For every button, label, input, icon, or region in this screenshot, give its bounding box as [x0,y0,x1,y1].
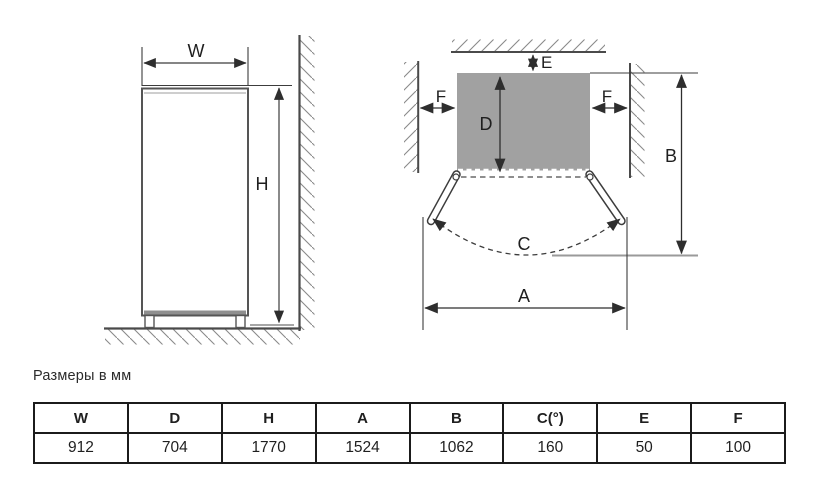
dim-label-b: B [665,146,677,166]
front-view-diagram: W H [104,35,315,345]
table-header-row: W D H A B C(°) E F [34,403,785,433]
fridge-foot-left [145,316,154,328]
table-value-cell-e: 50 [597,433,691,463]
table-value-cell-h: 1770 [222,433,316,463]
floor-hatch [105,330,300,345]
units-caption: Размеры в мм [33,368,131,384]
fridge-body-front [142,89,248,316]
open-door-left [431,174,459,221]
open-door-right [587,174,622,221]
fridge-foot-right [236,316,245,328]
dim-label-a: A [518,286,530,306]
door-hinge-left [453,174,459,180]
dim-label-f-right: F [602,87,612,106]
right-wall-hatch [631,64,645,177]
dim-label-c: C [518,234,531,254]
wall-hatch-right [301,36,315,330]
door-hinge-right [587,174,593,180]
table-value-cell-c: 160 [503,433,597,463]
table-header-cell-e: E [597,403,691,433]
table-header-cell-f: F [691,403,785,433]
dim-label-e: E [541,53,552,72]
table-header-cell-h: H [222,403,316,433]
table-value-cell-b: 1062 [410,433,504,463]
table-value-cell-f: 100 [691,433,785,463]
table-header-cell-a: A [316,403,410,433]
table-value-cell-d: 704 [128,433,222,463]
page: W H E D [0,0,816,486]
fridge-body-top [457,73,590,171]
table-header-cell-d: D [128,403,222,433]
fridge-base-plinth [144,311,246,315]
dim-label-f-left: F [436,87,446,106]
table-value-cell-w: 912 [34,433,128,463]
table-value-row: 912 704 1770 1524 1062 160 50 100 [34,433,785,463]
back-wall-hatch [452,40,605,52]
table-header-cell-b: B [410,403,504,433]
installation-diagram: W H E D [0,0,816,360]
dim-label-h: H [256,174,269,194]
top-view-diagram: E D F F C [404,40,698,331]
dim-label-d: D [480,114,493,134]
left-wall-hatch [404,62,418,172]
table-header-cell-c: C(°) [503,403,597,433]
dimensions-table: W D H A B C(°) E F 912 704 1770 1524 106… [33,402,786,464]
table-header-cell-w: W [34,403,128,433]
table-value-cell-a: 1524 [316,433,410,463]
dim-label-w: W [188,41,205,61]
